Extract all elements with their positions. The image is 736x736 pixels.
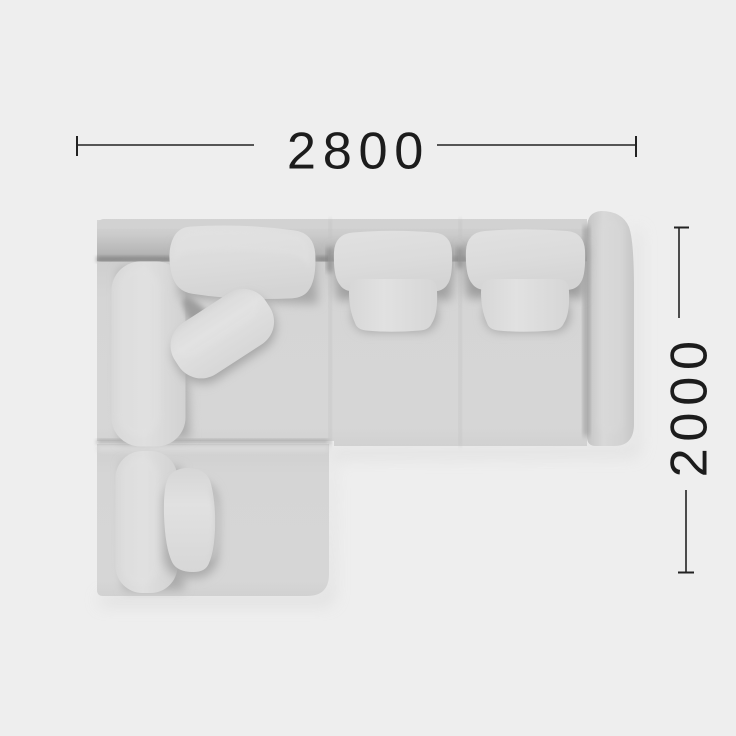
svg-text:2800: 2800 — [287, 123, 430, 181]
svg-text:2000: 2000 — [661, 334, 719, 477]
